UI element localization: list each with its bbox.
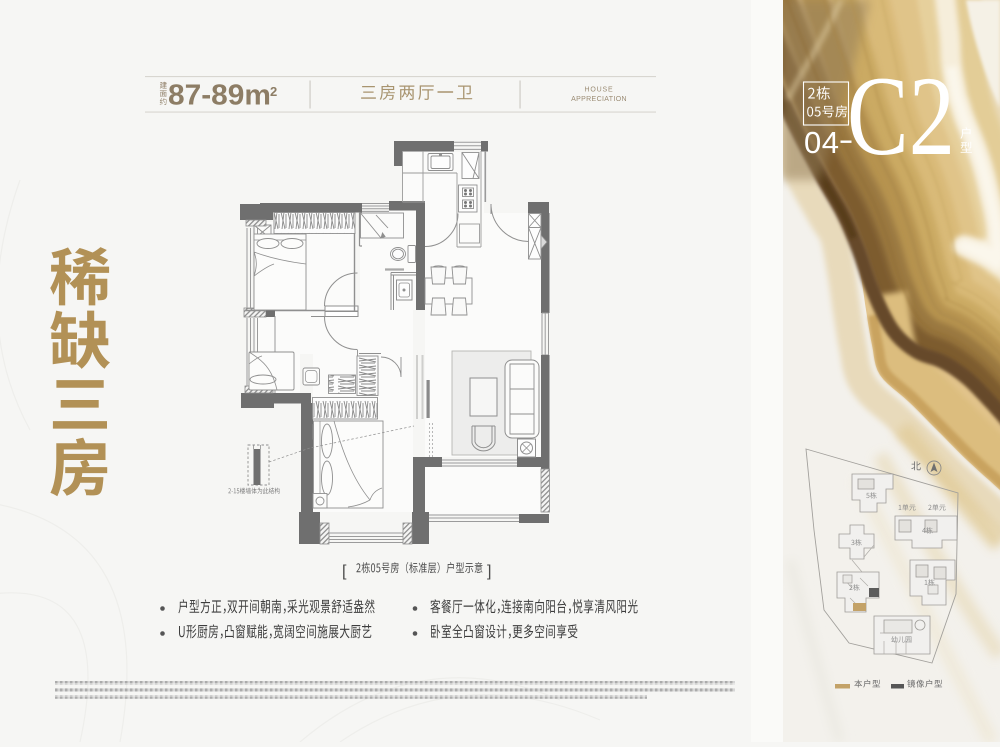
svg-text:HOUSE: HOUSE xyxy=(585,87,614,94)
svg-text:2: 2 xyxy=(270,84,277,99)
svg-text:APPRECIATION: APPRECIATION xyxy=(571,96,627,103)
svg-text:87-89m: 87-89m xyxy=(168,80,271,112)
svg-text:04: 04 xyxy=(804,125,839,160)
svg-text:[: [ xyxy=(342,563,347,580)
svg-text:]: ] xyxy=(487,563,491,580)
svg-text:C2: C2 xyxy=(847,54,955,179)
